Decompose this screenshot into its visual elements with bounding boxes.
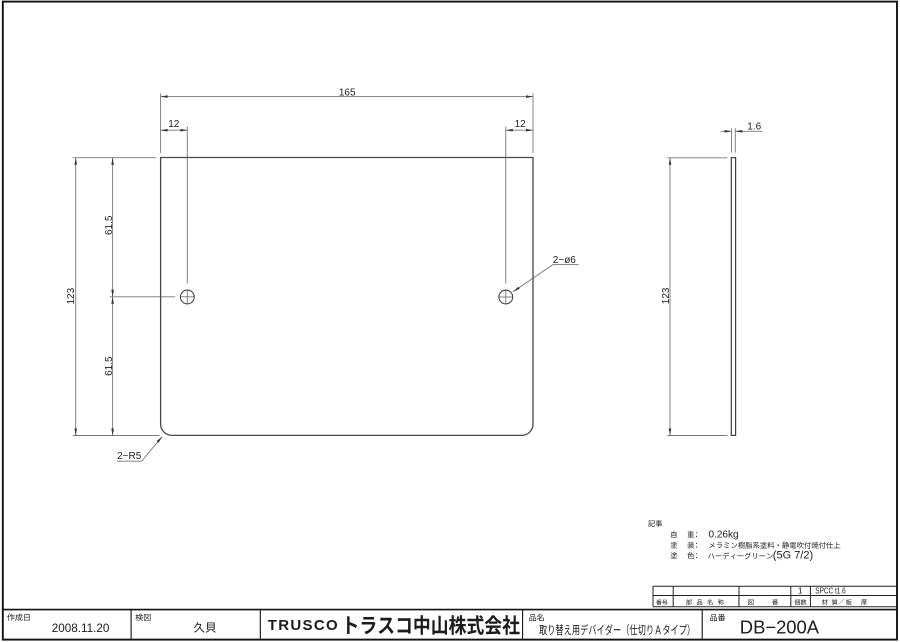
svg-text:(5G 7/2): (5G 7/2) <box>773 550 813 562</box>
svg-text:1.6: 1.6 <box>747 122 761 133</box>
svg-text:1: 1 <box>798 585 803 595</box>
svg-text:12: 12 <box>515 119 527 130</box>
svg-text:123: 123 <box>66 287 77 304</box>
svg-text:2008.11.20: 2008.11.20 <box>52 622 110 635</box>
svg-text:12: 12 <box>168 119 180 130</box>
svg-text:61.5: 61.5 <box>104 356 115 376</box>
svg-text:165: 165 <box>339 88 356 99</box>
svg-text:123: 123 <box>661 287 672 304</box>
svg-text:2−ø6: 2−ø6 <box>553 255 577 266</box>
svg-text:TRUSCO: TRUSCO <box>268 617 339 634</box>
svg-text:0.26kg: 0.26kg <box>709 530 739 541</box>
svg-text:61.5: 61.5 <box>104 215 115 235</box>
svg-text:2−R5: 2−R5 <box>117 451 142 462</box>
svg-text:DB−200A: DB−200A <box>740 616 820 637</box>
svg-text:SPCC t1.6: SPCC t1.6 <box>815 586 846 596</box>
